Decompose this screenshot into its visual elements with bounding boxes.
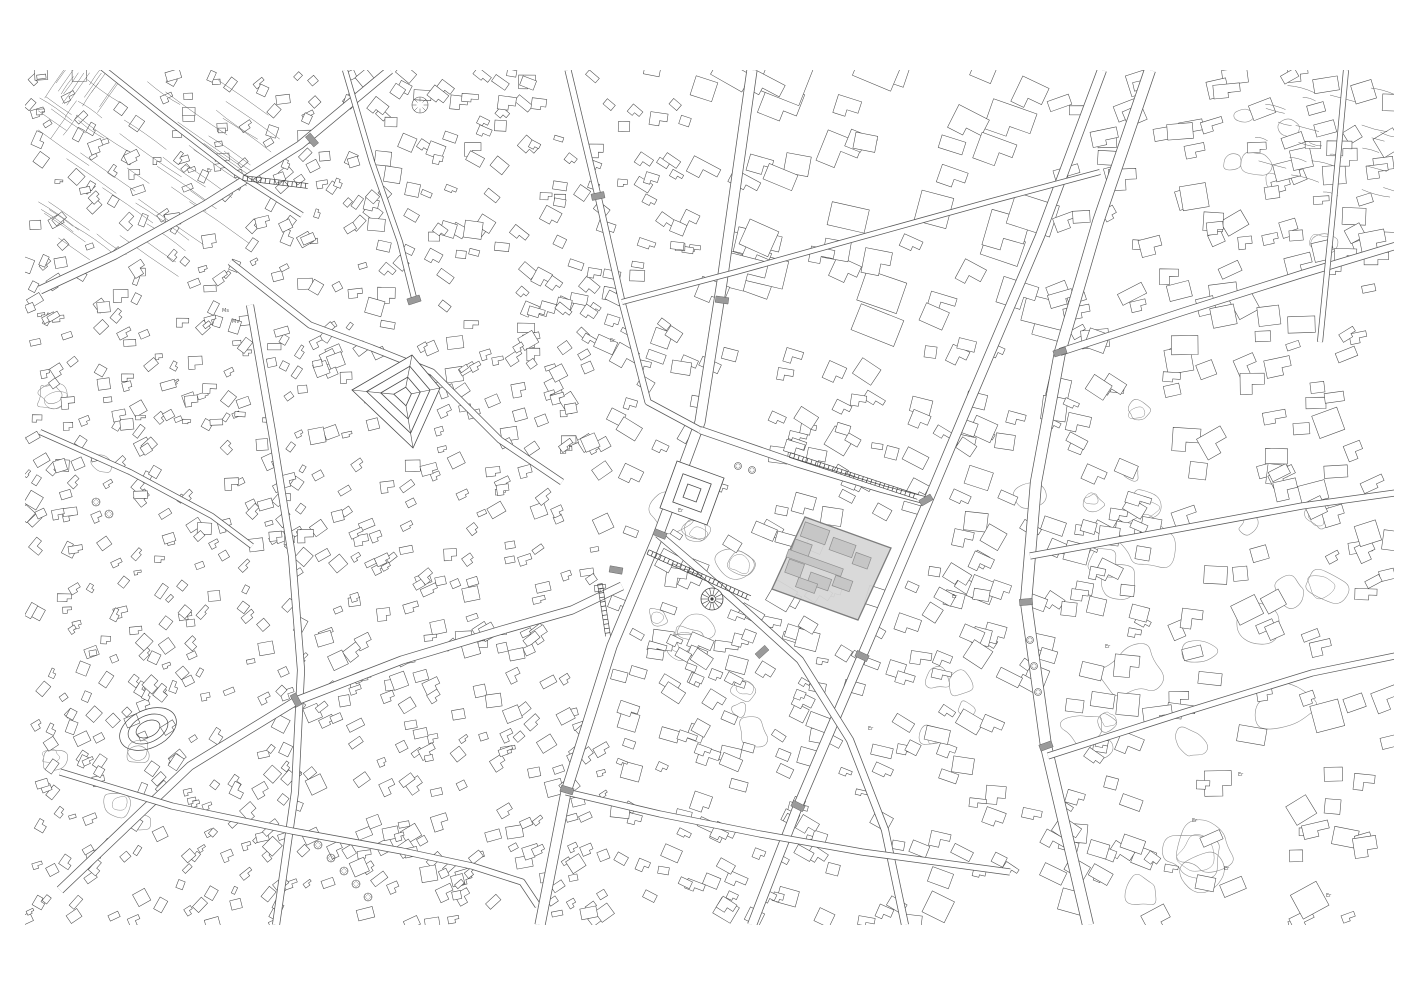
figure-ground-city-map: ErErErMsMvErErErErErErEr: [0, 0, 1419, 1000]
parcel-code-label: Mv: [232, 319, 239, 325]
parcel-code-label: Ms: [222, 308, 229, 314]
plan-sheet: ErErErMsMvErErErErErErEr: [0, 0, 1419, 1000]
